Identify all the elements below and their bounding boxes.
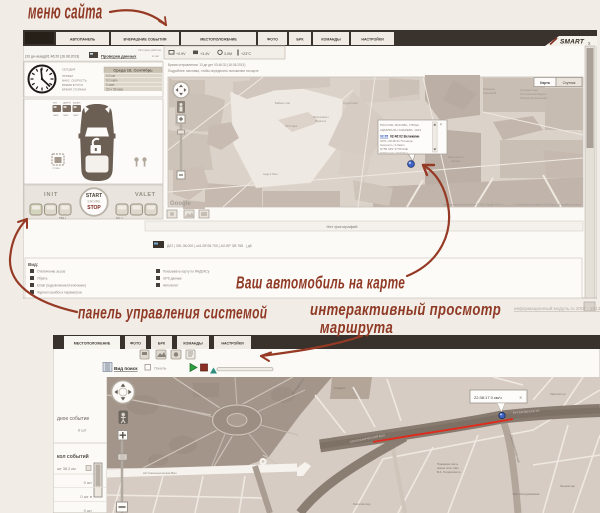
- svg-text:информационный модуль.ru 2007: информационный модуль.ru 2007 - 2013: [514, 305, 600, 311]
